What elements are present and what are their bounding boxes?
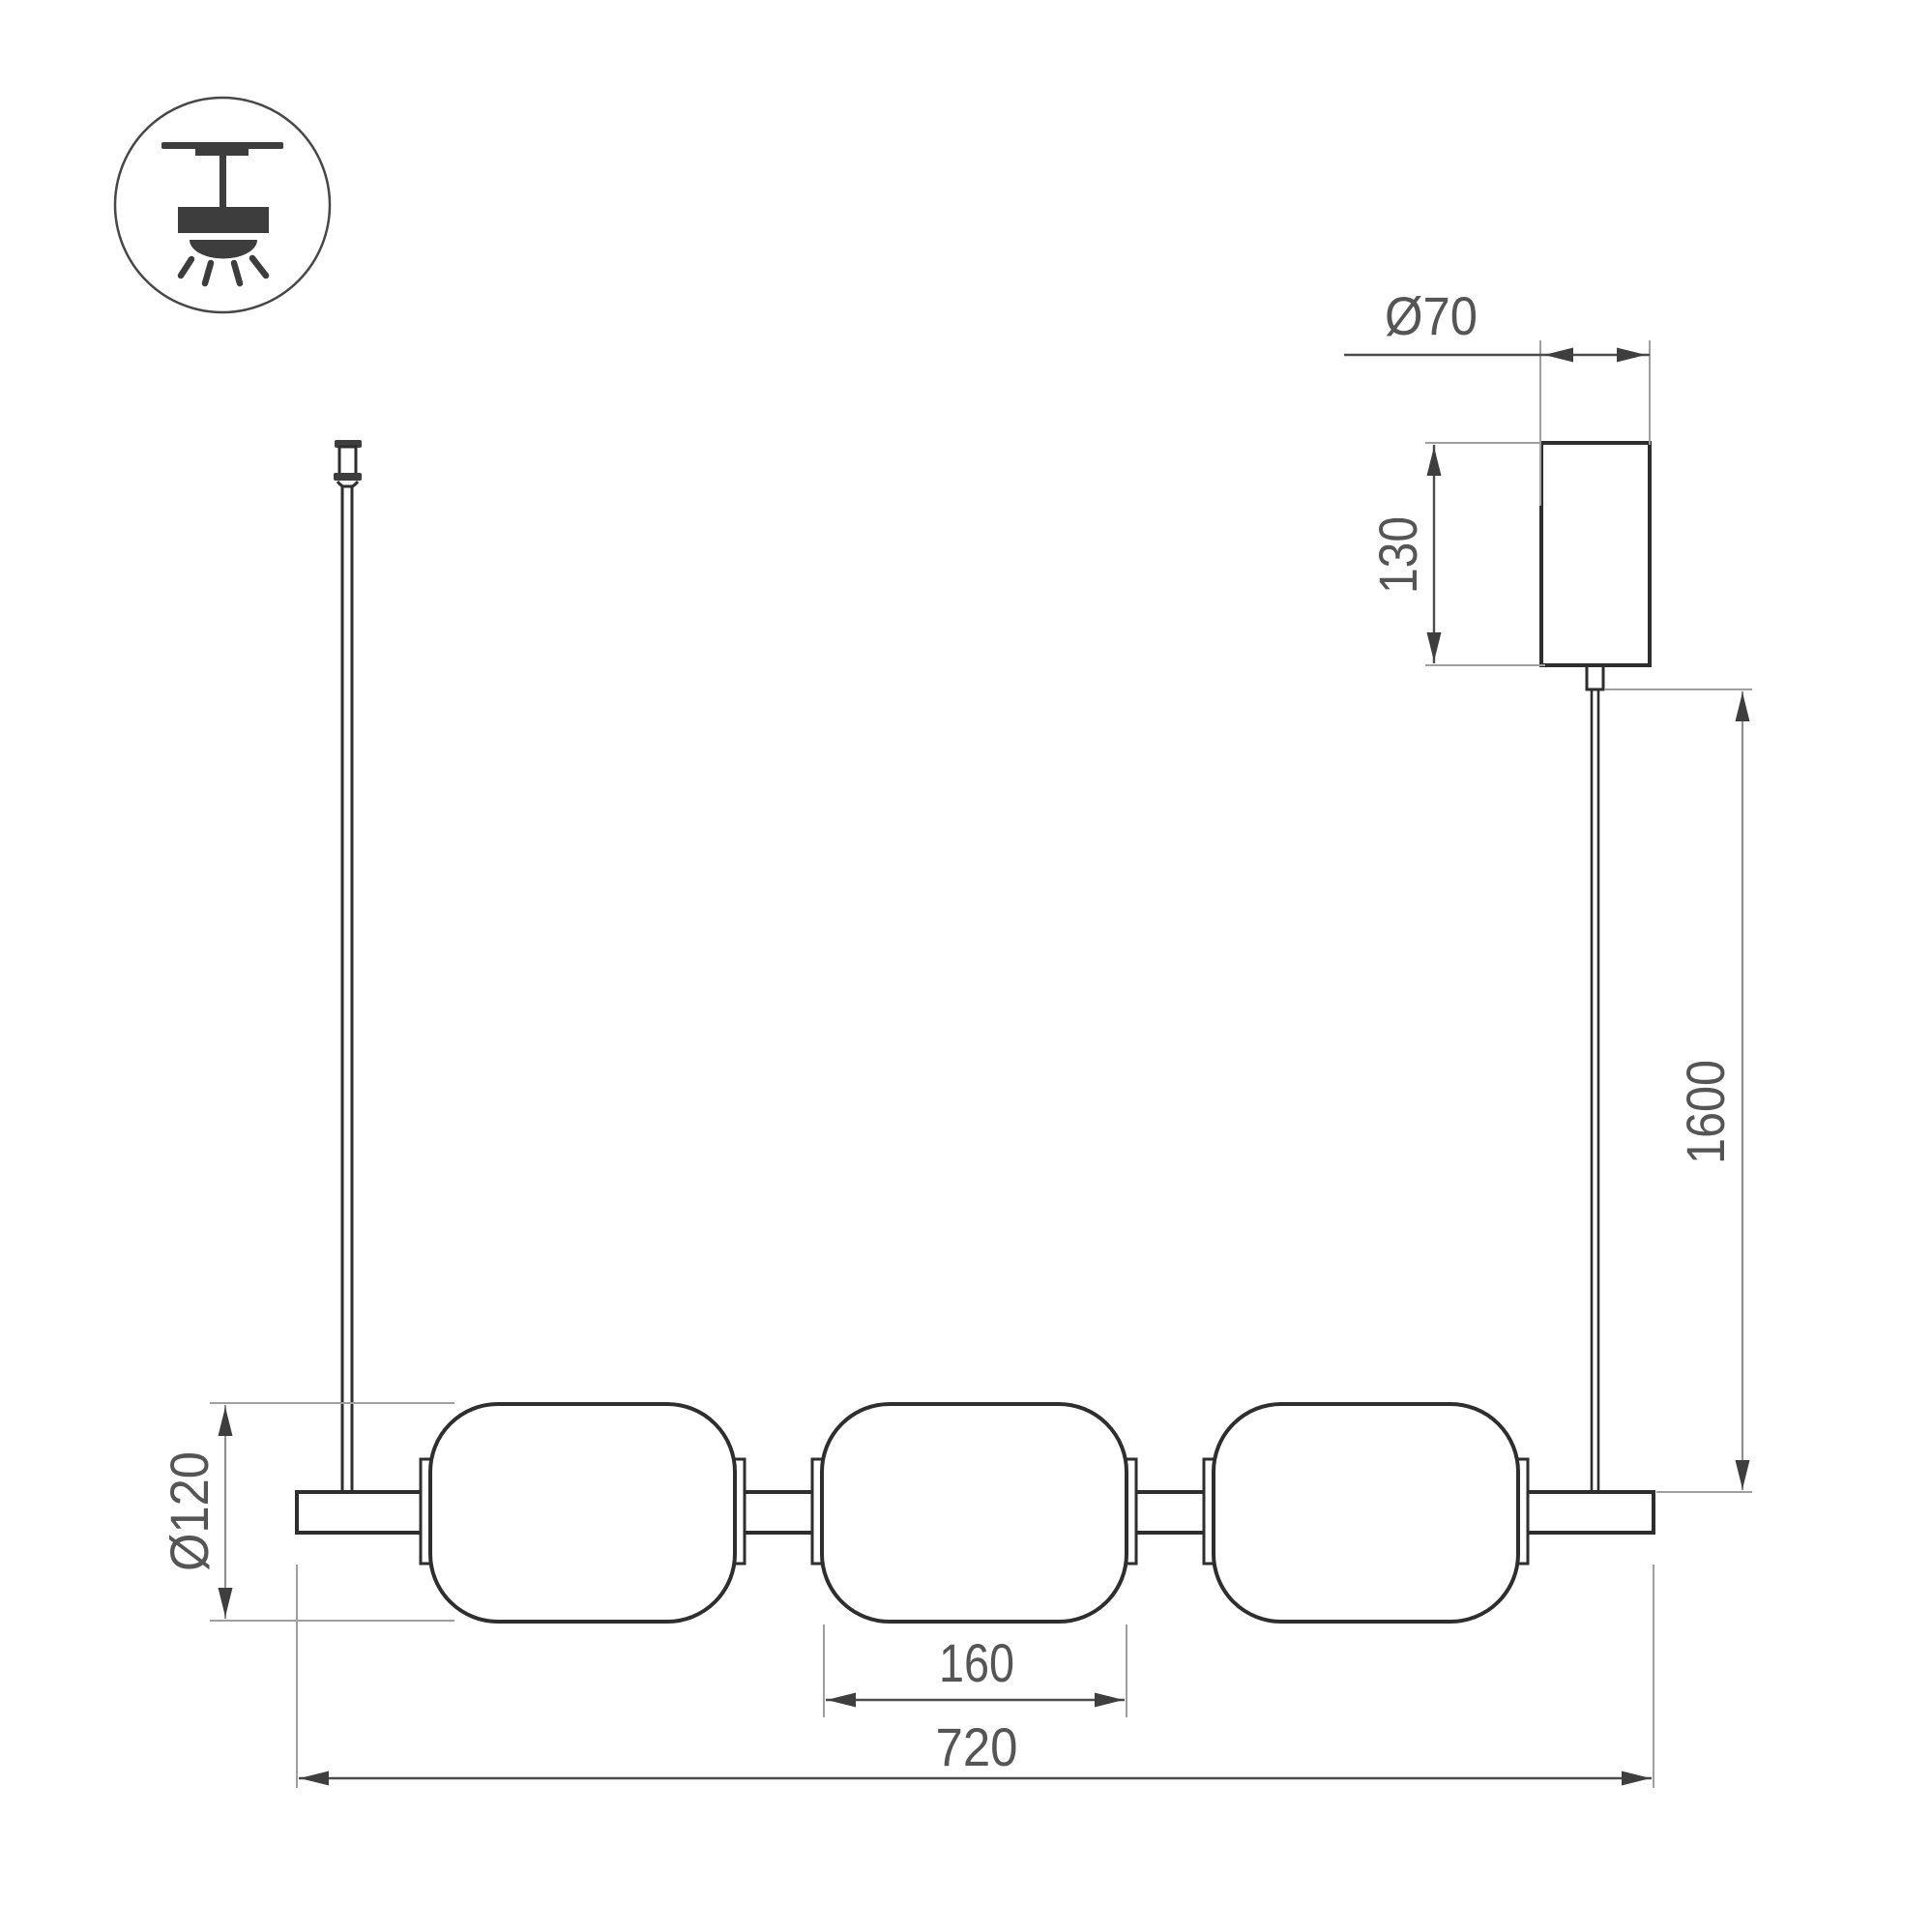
suspension-cable bbox=[1592, 689, 1598, 1494]
dim-label-fixture-width: 720 bbox=[936, 1716, 1018, 1777]
arrowhead-left bbox=[300, 1771, 329, 1786]
arrowhead-left bbox=[827, 1693, 856, 1708]
pendant-fixture-drawing bbox=[297, 440, 1654, 1622]
dim-canopy-height: 130 bbox=[1367, 443, 1545, 665]
arrowhead-right bbox=[1095, 1693, 1124, 1708]
dim-label-shade-diameter: Ø120 bbox=[159, 1451, 220, 1571]
dim-suspension-height: 1600 bbox=[1605, 689, 1752, 1492]
technical-drawing-page: Ø70 130 1600 Ø120 160 bbox=[0, 0, 1932, 1932]
arrowhead-up bbox=[1736, 692, 1750, 721]
fitting-body bbox=[339, 447, 356, 475]
arrowhead-right bbox=[1617, 348, 1646, 363]
arrowhead-down bbox=[1736, 1460, 1750, 1489]
arrowhead-up bbox=[219, 1407, 233, 1436]
lampshade-3 bbox=[1214, 1404, 1518, 1622]
fitting-flange bbox=[334, 473, 362, 481]
lampshade-1 bbox=[430, 1404, 735, 1622]
arrowhead-down bbox=[219, 1588, 233, 1617]
canopy-connector bbox=[1587, 665, 1603, 689]
pendant-lamp-dimension-drawing: Ø70 130 1600 Ø120 160 bbox=[0, 0, 1932, 1932]
dim-shade-width: 160 bbox=[824, 1625, 1127, 1717]
lamp-stem bbox=[220, 153, 226, 208]
ceiling-line bbox=[161, 142, 283, 149]
dim-label-suspension-height: 1600 bbox=[1675, 1060, 1736, 1164]
rod-ceiling-fitting bbox=[334, 440, 362, 488]
arrowhead-left bbox=[1544, 348, 1573, 363]
canopy bbox=[1541, 443, 1650, 665]
arrowhead-right bbox=[1622, 1771, 1651, 1786]
lamp-body bbox=[178, 207, 269, 233]
suspension-rod bbox=[342, 486, 352, 1494]
lampshade-2 bbox=[822, 1404, 1127, 1622]
pendant-light-icon bbox=[115, 98, 330, 312]
arrowhead-down bbox=[1427, 632, 1442, 661]
dim-label-shade-width: 160 bbox=[939, 1632, 1014, 1693]
dim-label-canopy-diameter: Ø70 bbox=[1385, 285, 1478, 346]
arrowhead-up bbox=[1427, 447, 1442, 476]
dim-label-canopy-height: 130 bbox=[1367, 516, 1428, 594]
